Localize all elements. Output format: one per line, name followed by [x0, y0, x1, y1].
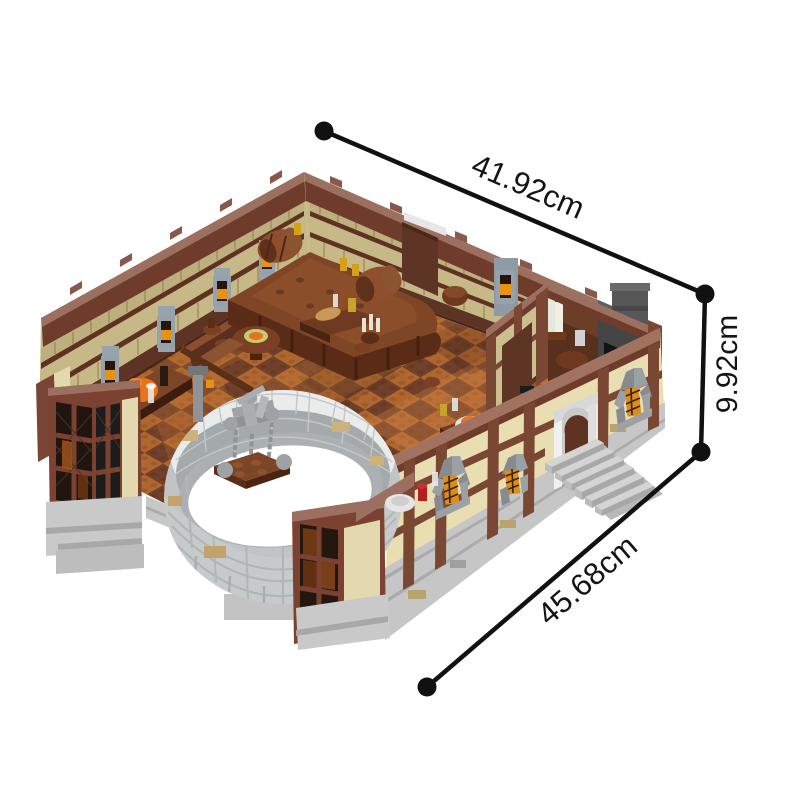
svg-text:9.92cm: 9.92cm [711, 315, 744, 413]
